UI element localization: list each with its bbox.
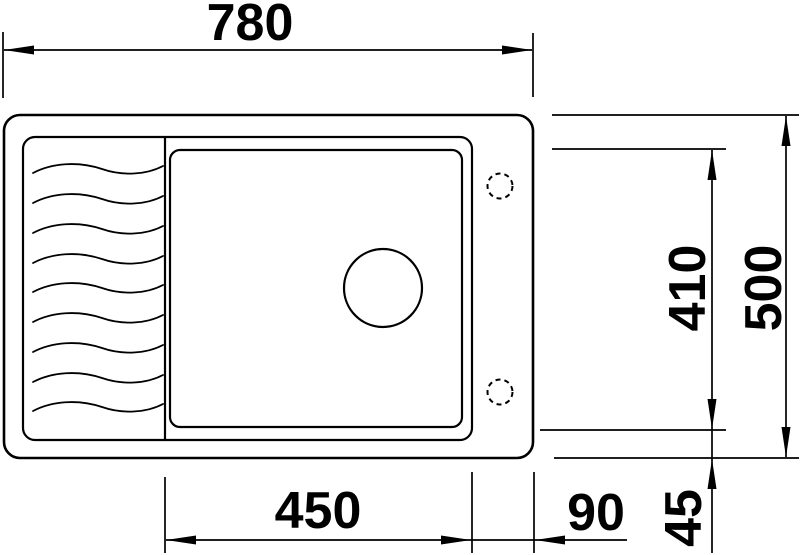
drain-hole [344,249,422,327]
sink-outline [4,115,533,458]
arrowhead-left [535,536,565,545]
drainboard-ridge [33,254,163,264]
technical-drawing: 780 450 90 410 500 45 [0,0,800,555]
tap-hole-bottom [488,380,513,405]
drainboard-ridge [33,283,163,293]
dim-overall-width: 780 [3,0,533,98]
dim-label-right-offset: 90 [567,484,625,542]
arrowhead-right [441,536,471,545]
drainboard-ridges [33,164,163,412]
arrowhead-down [708,399,717,429]
drainboard-ridge [33,343,163,353]
arrowhead-right [502,46,532,55]
arrowhead-up [708,150,717,180]
bowl-inner-edge [170,150,462,427]
dim-right-offset: 90 [534,472,625,553]
drainboard-ridge [33,164,163,174]
drainboard-ridge [33,224,163,234]
arrowhead-up [708,459,717,489]
dim-label-overall-width: 780 [207,0,294,52]
dim-label-bowl-width: 450 [275,482,362,540]
drainboard-ridge [33,194,163,204]
arrowhead-left [166,536,196,545]
sink-rim-inner [23,137,472,440]
drainboard-ridge [33,313,163,323]
dim-label-bowl-depth: 410 [659,245,717,332]
arrowhead-left [4,46,34,55]
sink-body [4,115,533,458]
tap-hole-top [488,174,513,199]
sink-drawing-canvas: 780 450 90 410 500 45 [0,0,800,555]
drainboard-ridge [33,373,163,383]
dim-bowl-depth: 410 [540,149,726,430]
arrowhead-up [782,116,791,146]
dim-label-bottom-offset: 45 [655,489,713,547]
arrowhead-down [782,427,791,457]
dim-bottom-offset: 45 [655,429,717,553]
drainboard-ridge [33,402,163,412]
dim-label-overall-depth: 500 [735,245,793,332]
